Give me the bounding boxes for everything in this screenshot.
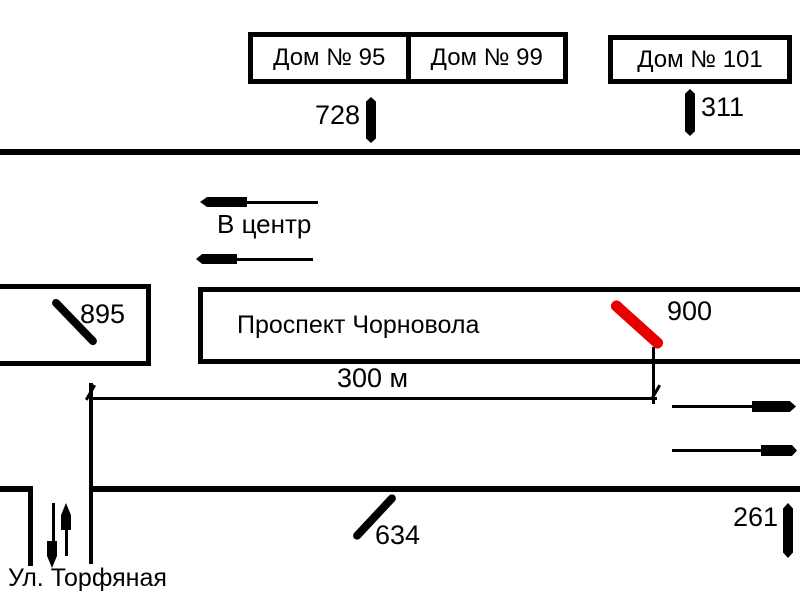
house-label-95: Дом № 95 [273,44,385,72]
house-block-101: Дом № 101 [608,35,792,84]
direction-to-center-label: В центр [217,211,311,237]
billboard-number-728: 728 [300,102,360,129]
house-block-95: Дом № 95 [253,37,411,79]
direction-arrow-left-icon [200,197,318,207]
billboard-pole-728-icon [366,97,376,143]
arrow-head [761,445,797,456]
avenue-bottom-edge-right [93,486,800,492]
house-block-row: Дом № 95 Дом № 99 [248,32,568,84]
direction-arrow-right-icon [672,445,797,456]
billboard-pole-311-icon [685,89,695,136]
side-street-name-label: Ул. Торфяная [8,566,167,591]
street-advertising-scheme: Дом № 95 Дом № 99 Дом № 101 728 311 В це… [0,0,800,600]
arrow-tail [237,258,313,261]
arrow-tail [247,201,318,204]
house-label-101: Дом № 101 [637,46,763,74]
side-street-left-edge [28,486,33,566]
arrow-head [752,401,796,412]
arrow-head [196,254,237,264]
arrow-tail [672,405,752,408]
billboard-number-634: 634 [375,522,420,549]
avenue-name-label: Проспект Чорновола [237,311,479,340]
side-street-right-edge [89,383,93,564]
billboard-pole-261-icon [783,503,793,558]
billboard-number-311: 311 [701,94,744,121]
avenue-top-edge-line [0,149,800,155]
traffic-arrow-up-icon [65,527,68,556]
billboard-number-900: 900 [667,298,712,325]
direction-arrow-right-icon [672,401,796,412]
house-label-99: Дом № 99 [431,44,543,72]
dimension-line [89,397,657,400]
direction-arrow-left-icon [196,254,313,264]
traffic-arrow-up-head-icon [61,503,71,530]
distance-label: 300 м [337,365,408,392]
billboard-number-261: 261 [720,504,778,531]
arrow-tail [672,449,761,452]
house-block-99: Дом № 99 [411,37,564,79]
arrow-head [200,197,247,207]
traffic-arrow-down-icon [52,503,55,545]
billboard-number-895: 895 [80,301,125,328]
